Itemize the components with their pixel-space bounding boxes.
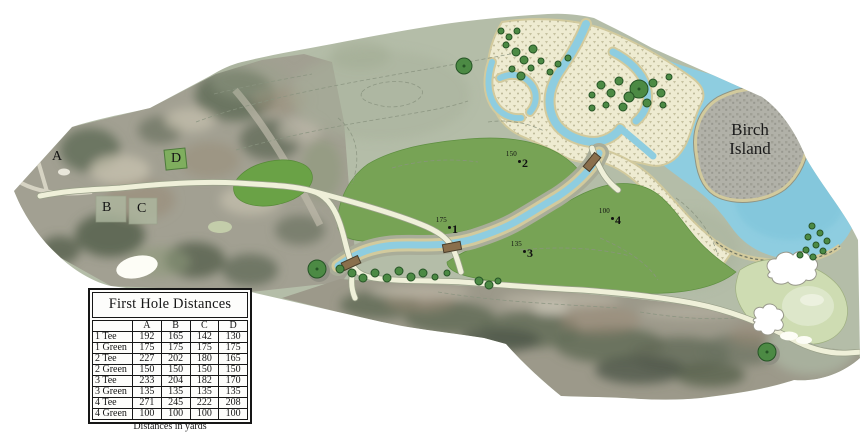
distance-table: ABCD 1 Tee1921651421301 Green17517517517…	[92, 320, 248, 420]
marker-number: 2	[522, 156, 528, 171]
label-c: C	[137, 201, 146, 217]
distance-value: 233	[133, 376, 162, 387]
distance-value: 271	[133, 398, 162, 409]
distance-value: 135	[133, 387, 162, 398]
distance-row: 1 Green175175175175	[93, 343, 248, 354]
row-label: 1 Tee	[93, 332, 133, 343]
birch-island-label-line1: Birch	[702, 121, 798, 140]
distance-row: 4 Tee271245222208	[93, 398, 248, 409]
distance-row: 2 Tee227202180165	[93, 354, 248, 365]
table-caption: Distances in yards	[88, 421, 252, 432]
column-header-c: C	[190, 321, 219, 332]
marker-number: 3	[527, 246, 533, 261]
marker-number: 4	[615, 213, 621, 228]
golf-course-map-page: A B C D Birch Island 175 1 150 2 135 3 1…	[0, 0, 864, 436]
distance-value: 100	[161, 409, 190, 420]
distance-value: 150	[190, 365, 219, 376]
distance-value: 142	[190, 332, 219, 343]
marker-distance: 175	[436, 216, 447, 224]
distance-value: 150	[161, 365, 190, 376]
column-header-d: D	[219, 321, 248, 332]
distance-row: 1 Tee192165142130	[93, 332, 248, 343]
distance-value: 175	[219, 343, 248, 354]
row-label: 3 Green	[93, 387, 133, 398]
birch-island-label-line2: Island	[702, 140, 798, 159]
birch-island-label: Birch Island	[702, 121, 798, 158]
distance-value: 175	[133, 343, 162, 354]
distance-value: 165	[161, 332, 190, 343]
distance-value: 192	[133, 332, 162, 343]
label-a: A	[52, 149, 62, 165]
distance-value: 175	[161, 343, 190, 354]
row-label: 4 Green	[93, 409, 133, 420]
distance-value: 180	[190, 354, 219, 365]
row-label: 4 Tee	[93, 398, 133, 409]
distance-value: 182	[190, 376, 219, 387]
distance-table-body: 1 Tee1921651421301 Green1751751751752 Te…	[93, 332, 248, 420]
marker-number: 1	[452, 222, 458, 237]
distance-value: 135	[219, 387, 248, 398]
distance-value: 135	[190, 387, 219, 398]
distance-value: 208	[219, 398, 248, 409]
table-title: First Hole Distances	[92, 292, 248, 318]
distance-row: 2 Green150150150150	[93, 365, 248, 376]
distance-value: 204	[161, 376, 190, 387]
marker-dot-icon	[523, 250, 526, 253]
row-label: 2 Green	[93, 365, 133, 376]
distance-value: 175	[190, 343, 219, 354]
distance-value: 165	[219, 354, 248, 365]
distance-value: 100	[190, 409, 219, 420]
label-b: B	[102, 200, 111, 216]
marker-dot-icon	[448, 226, 451, 229]
marker-dot-icon	[518, 160, 521, 163]
distance-table-card: First Hole Distances ABCD 1 Tee192165142…	[88, 288, 252, 424]
distance-value: 170	[219, 376, 248, 387]
row-label: 3 Tee	[93, 376, 133, 387]
distance-value: 135	[161, 387, 190, 398]
column-header-b: B	[161, 321, 190, 332]
column-header-blank	[93, 321, 133, 332]
distance-value: 150	[133, 365, 162, 376]
distance-table-head-row: ABCD	[93, 321, 248, 332]
marker-distance: 100	[599, 207, 610, 215]
distance-value: 227	[133, 354, 162, 365]
distance-value: 222	[190, 398, 219, 409]
column-header-a: A	[133, 321, 162, 332]
marker-distance: 150	[506, 150, 517, 158]
label-d: D	[171, 151, 181, 167]
distance-row: 3 Tee233204182170	[93, 376, 248, 387]
marker-distance: 135	[511, 240, 522, 248]
row-label: 1 Green	[93, 343, 133, 354]
distance-row: 3 Green135135135135	[93, 387, 248, 398]
marker-dot-icon	[611, 217, 614, 220]
distance-value: 245	[161, 398, 190, 409]
distance-value: 100	[133, 409, 162, 420]
row-label: 2 Tee	[93, 354, 133, 365]
distance-value: 202	[161, 354, 190, 365]
distance-value: 100	[219, 409, 248, 420]
distance-value: 150	[219, 365, 248, 376]
distance-row: 4 Green100100100100	[93, 409, 248, 420]
distance-value: 130	[219, 332, 248, 343]
